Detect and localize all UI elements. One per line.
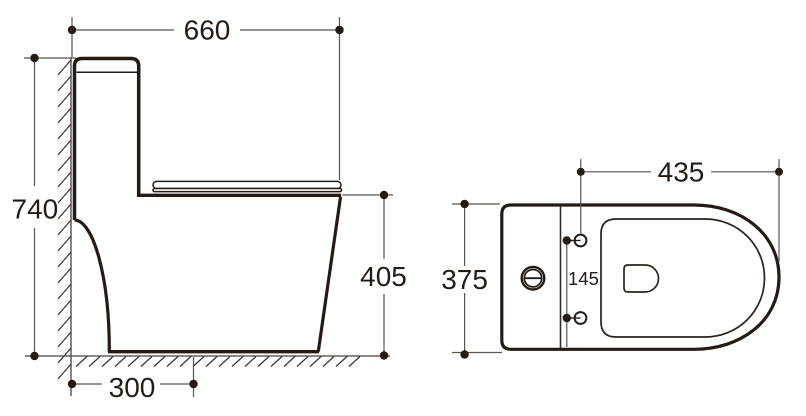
svg-text:435: 435 bbox=[658, 157, 705, 188]
svg-text:405: 405 bbox=[360, 261, 407, 292]
svg-text:300: 300 bbox=[109, 372, 156, 403]
svg-text:145: 145 bbox=[568, 268, 599, 289]
svg-text:375: 375 bbox=[441, 264, 488, 295]
svg-text:660: 660 bbox=[184, 15, 231, 46]
svg-text:740: 740 bbox=[12, 194, 59, 225]
